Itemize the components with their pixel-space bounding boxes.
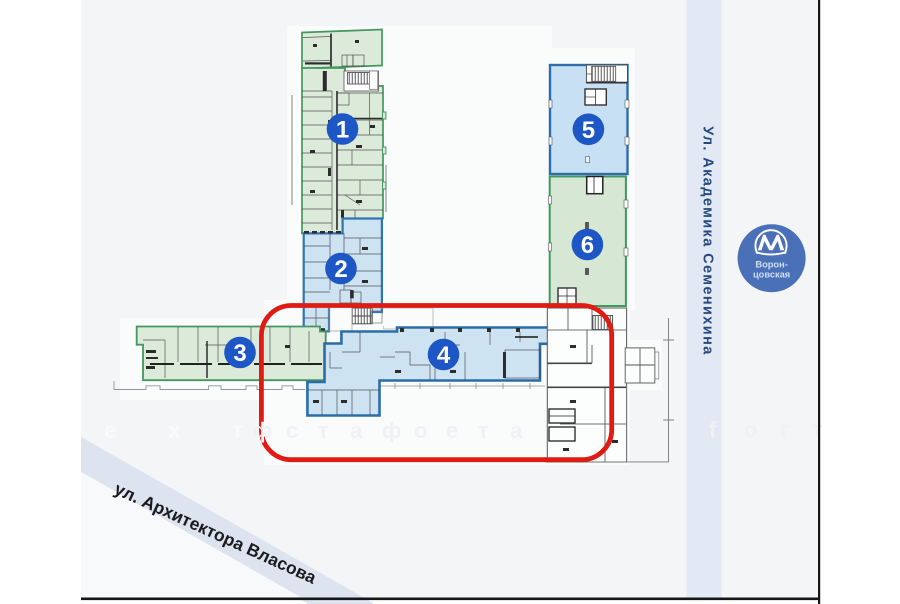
svg-text:т: т — [318, 418, 329, 443]
svg-text:с: с — [286, 418, 298, 443]
svg-text:о: о — [414, 418, 427, 443]
svg-text:Ул. Академика Семенихина: Ул. Академика Семенихина — [700, 126, 716, 355]
svg-text:е: е — [104, 417, 117, 443]
svg-text:2: 2 — [334, 256, 347, 283]
svg-text:т: т — [478, 418, 489, 443]
svg-text:ф: ф — [382, 418, 401, 443]
svg-text:цовская: цовская — [753, 270, 790, 280]
svg-text:6: 6 — [581, 232, 594, 259]
svg-text:Ворон-: Ворон- — [755, 259, 787, 269]
svg-text:е: е — [446, 418, 458, 443]
svg-text:1: 1 — [336, 117, 349, 144]
svg-text:5: 5 — [582, 117, 595, 144]
svg-text:о: о — [744, 417, 757, 442]
svg-text:а: а — [510, 418, 523, 443]
svg-text:ф: ф — [253, 418, 272, 443]
svg-text:3: 3 — [233, 340, 246, 367]
svg-text:г: г — [780, 417, 789, 442]
svg-text:т: т — [812, 417, 823, 442]
svg-text:т: т — [232, 417, 243, 443]
svg-text:f: f — [709, 417, 717, 442]
svg-text:х: х — [168, 417, 181, 443]
svg-text:а: а — [350, 418, 363, 443]
svg-text:4: 4 — [437, 342, 451, 369]
